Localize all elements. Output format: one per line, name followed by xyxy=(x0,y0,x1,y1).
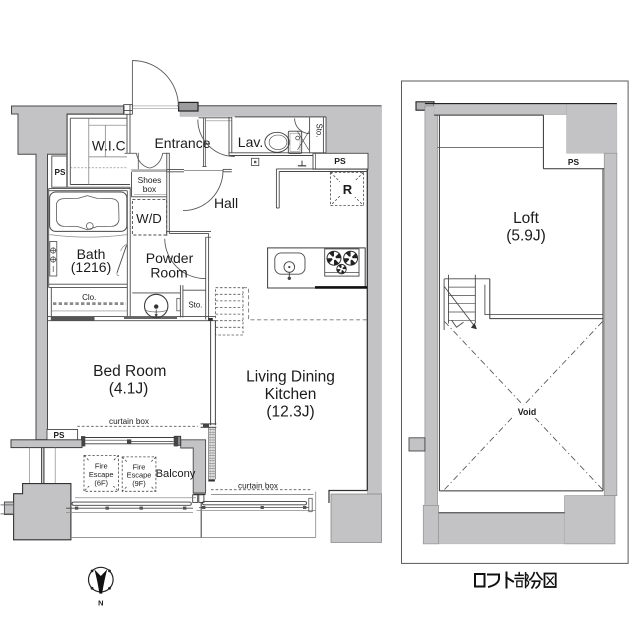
svg-text:W/D: W/D xyxy=(136,211,162,226)
svg-text:(6F): (6F) xyxy=(94,478,108,487)
svg-text:box: box xyxy=(143,184,157,194)
svg-text:Room: Room xyxy=(150,264,187,280)
svg-text:Kitchen: Kitchen xyxy=(265,386,317,403)
svg-text:Bed Room: Bed Room xyxy=(93,363,166,380)
svg-text:Loft: Loft xyxy=(513,210,540,227)
svg-text:curtain box: curtain box xyxy=(109,417,149,426)
svg-text:Lav.: Lav. xyxy=(238,134,263,150)
svg-text:Sto.: Sto. xyxy=(314,124,323,138)
svg-text:R: R xyxy=(343,182,353,197)
svg-text:N: N xyxy=(98,599,103,608)
svg-text:(5.9J): (5.9J) xyxy=(506,228,546,245)
svg-text:(9F): (9F) xyxy=(132,479,146,488)
svg-text:Clo.: Clo. xyxy=(82,293,96,302)
svg-text:Balcony: Balcony xyxy=(156,468,196,480)
svg-text:Sto.: Sto. xyxy=(188,300,202,309)
svg-text:Void: Void xyxy=(518,407,536,417)
svg-text:(4.1J): (4.1J) xyxy=(109,381,149,398)
svg-text:PS: PS xyxy=(568,157,580,167)
svg-text:curtain box: curtain box xyxy=(238,482,278,491)
svg-text:W.I.C: W.I.C xyxy=(92,139,126,154)
svg-text:PS: PS xyxy=(55,168,66,177)
svg-text:PS: PS xyxy=(334,156,346,166)
svg-text:(12.3J): (12.3J) xyxy=(266,403,314,420)
svg-text:PS: PS xyxy=(54,431,65,440)
svg-text:Hall: Hall xyxy=(214,195,238,211)
svg-text:Living Dining: Living Dining xyxy=(246,368,335,385)
svg-text:Entrance: Entrance xyxy=(154,135,210,151)
svg-text:(1216): (1216) xyxy=(71,259,111,275)
